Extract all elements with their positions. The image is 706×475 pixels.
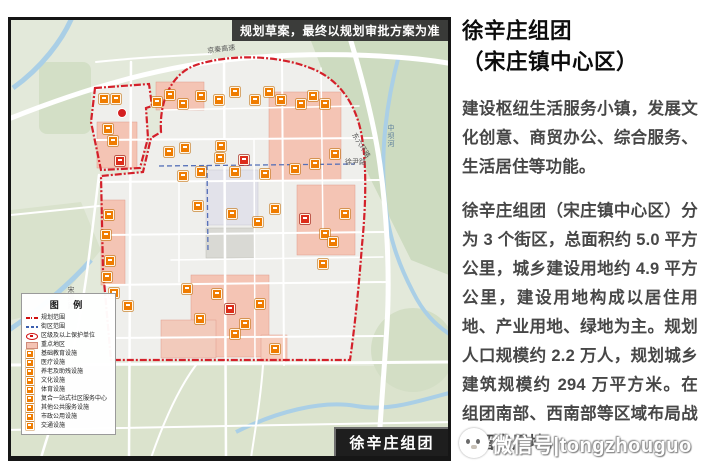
legend-item: 文化设施 [26, 377, 112, 385]
wechat-avatar-icon [459, 428, 489, 458]
legend-item: 重点地区 [26, 341, 112, 349]
legend-label: 区级及以上保护单位 [41, 333, 95, 339]
legend-symbol-line-red [26, 317, 38, 319]
legend-label: 医疗设施 [41, 360, 65, 366]
legend-symbol-icon [26, 413, 34, 421]
legend-item: 区级及以上保护单位 [26, 332, 112, 340]
legend-item: 养老及助残设施 [26, 368, 112, 376]
article-panel: 徐辛庄组团（宋庄镇中心区） 建设枢纽生活服务小镇，发展文化创意、商贸办公、综合服… [462, 16, 698, 473]
legend-item: 其他公共服务设施 [26, 404, 112, 412]
map-road-label: 中坝河 [387, 124, 394, 148]
legend-label: 养老及助残设施 [41, 369, 83, 375]
article-paragraph-2: 徐辛庄组团（宋庄镇中心区）分为 3 个街区，总面积约 5.0 平方公里，城乡建设… [462, 197, 698, 458]
legend-item: 体育设施 [26, 386, 112, 394]
map-road-label: 东六环路 [350, 132, 371, 159]
draft-disclaimer-banner: 规划草案，最终以规划审批方案为准 [232, 20, 448, 41]
legend-symbol-fill-pink [26, 342, 38, 349]
map-road-label: 徐尹路 [345, 159, 366, 166]
legend-symbol-line-blue [26, 326, 38, 328]
legend-symbol-icon [26, 350, 34, 358]
article-title-line1: 徐辛庄组团 [462, 19, 572, 43]
legend-label: 街区范围 [41, 324, 65, 330]
article-paragraph-1: 建设枢纽生活服务小镇，发展文化创意、商贸办公、综合服务、生活居住等功能。 [462, 95, 698, 182]
watermark-text: 微信号|tongzhouguo [492, 429, 692, 458]
map-corner-label: 徐辛庄组团 [334, 427, 448, 456]
legend-label: 文化设施 [41, 378, 65, 384]
legend-title: 图 例 [26, 298, 112, 311]
legend-label: 规划范围 [41, 315, 65, 321]
legend-symbol-icon [26, 404, 34, 412]
legend-symbol-icon [26, 368, 34, 376]
legend-symbol-icon [26, 377, 34, 385]
planning-map: 京秦高速东六环路中坝河宋梁路徐尹路 规划草案，最终以规划审批方案为准 图 例 规… [8, 17, 451, 461]
legend-item: 交通设施 [26, 422, 112, 430]
legend-label: 基础教育设施 [41, 351, 77, 357]
map-legend: 图 例 规划范围街区范围区级及以上保护单位重点地区基础教育设施医疗设施养老及助残… [21, 293, 116, 435]
map-road-label: 京秦高速 [207, 45, 236, 55]
legend-item: 街区范围 [26, 323, 112, 331]
legend-item: 基础教育设施 [26, 350, 112, 358]
legend-label: 复合一站式社区服务中心 [41, 396, 107, 402]
legend-label: 重点地区 [41, 342, 65, 348]
legend-symbol-icon [26, 386, 34, 394]
legend-symbol-icon [26, 422, 34, 430]
article-title: 徐辛庄组团（宋庄镇中心区） [462, 16, 698, 78]
legend-symbol-icon [26, 359, 34, 367]
page: 京秦高速东六环路中坝河宋梁路徐尹路 规划草案，最终以规划审批方案为准 图 例 规… [0, 0, 706, 475]
legend-symbol-oval-red [26, 333, 38, 340]
legend-item: 医疗设施 [26, 359, 112, 367]
legend-label: 市政公用设施 [41, 414, 77, 420]
legend-item: 规划范围 [26, 314, 112, 322]
legend-label: 交通设施 [41, 423, 65, 429]
legend-rows: 规划范围街区范围区级及以上保护单位重点地区基础教育设施医疗设施养老及助残设施文化… [26, 314, 112, 430]
article-title-line2: （宋庄镇中心区） [462, 50, 638, 74]
legend-symbol-icon [26, 395, 34, 403]
legend-label: 其他公共服务设施 [41, 405, 89, 411]
legend-item: 复合一站式社区服务中心 [26, 395, 112, 403]
watermark: 微信号|tongzhouguo [459, 428, 692, 458]
legend-item: 市政公用设施 [26, 413, 112, 421]
legend-label: 体育设施 [41, 387, 65, 393]
